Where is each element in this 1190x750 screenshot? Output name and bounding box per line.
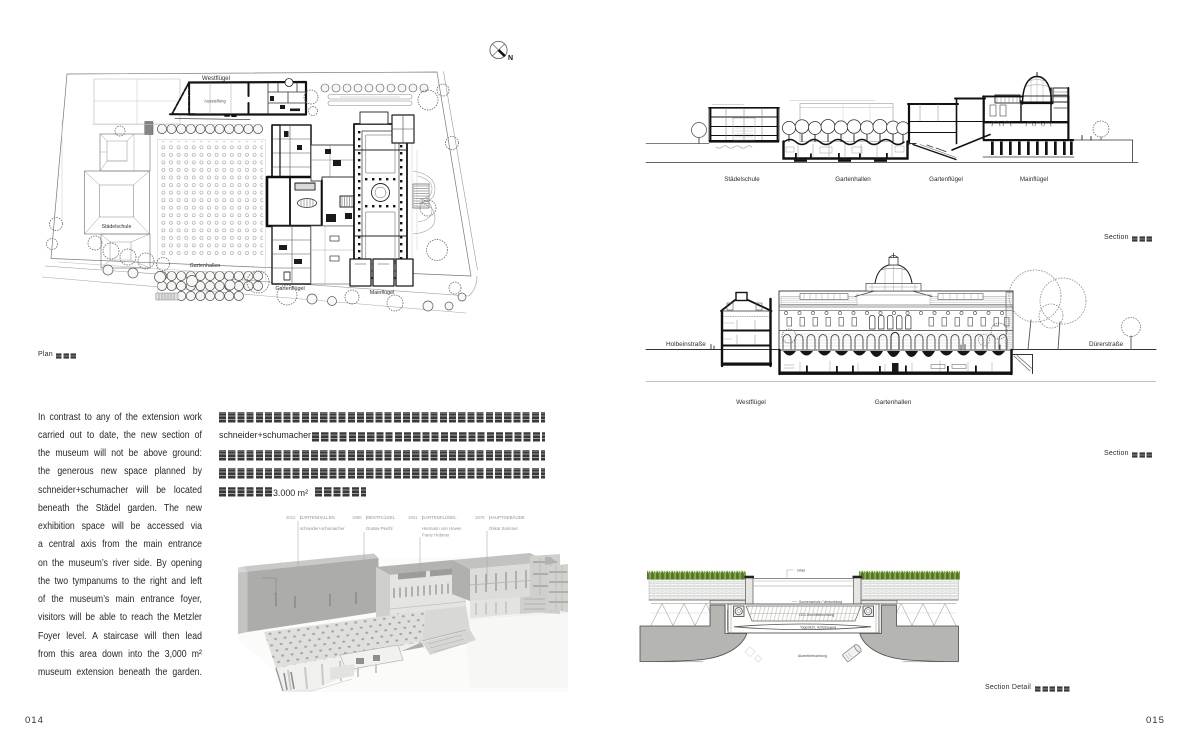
svg-text:Städelschule: Städelschule	[724, 176, 760, 183]
svg-text:Mainflügel: Mainflügel	[370, 290, 395, 296]
svg-text:Ausstellung: Ausstellung	[204, 99, 226, 104]
svg-text:Tageslicht, lichtstreuend: Tageslicht, lichtstreuend	[800, 625, 836, 629]
svg-text:HAUPTGEBÄUDE: HAUPTGEBÄUDE	[489, 515, 525, 520]
svg-text:Städelschule: Städelschule	[102, 224, 132, 230]
svg-text:schneider+schumacher: schneider+schumacher	[300, 526, 345, 531]
svg-text:2012: 2012	[286, 515, 296, 520]
svg-text:1921: 1921	[408, 515, 418, 520]
svg-text:Gartenflügel: Gartenflügel	[929, 176, 963, 183]
svg-text:Gartenhallen: Gartenhallen	[875, 399, 912, 406]
svg-text:1990: 1990	[352, 515, 362, 520]
svg-text:Holbeinstraße: Holbeinstraße	[666, 341, 706, 348]
svg-text:Westflügel: Westflügel	[736, 399, 766, 406]
svg-text:Gartenhallen: Gartenhallen	[835, 176, 871, 183]
svg-text:Mainflügel: Mainflügel	[1020, 176, 1048, 183]
svg-text:Franz Heberer: Franz Heberer	[422, 533, 450, 538]
svg-text:WESTFLÜGEL: WESTFLÜGEL	[366, 515, 396, 520]
svg-text:Sonnenschutz / Verdunklung: Sonnenschutz / Verdunklung	[799, 600, 842, 604]
svg-text:N: N	[508, 55, 513, 62]
svg-text:GARTENHALLEN: GARTENHALLEN	[300, 515, 335, 520]
svg-text:Gartenhallen: Gartenhallen	[190, 263, 221, 269]
svg-text:LED-Durchbeleuchtung: LED-Durchbeleuchtung	[799, 613, 834, 617]
svg-text:Akzentbeleuchtung: Akzentbeleuchtung	[798, 654, 827, 658]
svg-text:Glas: Glas	[797, 568, 805, 573]
svg-text:Hermann von Hoven: Hermann von Hoven	[422, 526, 462, 531]
svg-text:Oskar Sommer: Oskar Sommer	[489, 526, 518, 531]
svg-text:GARTENFLÜGEL: GARTENFLÜGEL	[422, 515, 457, 520]
svg-text:Westflügel: Westflügel	[202, 76, 230, 82]
svg-text:Gartenflügel: Gartenflügel	[275, 286, 304, 292]
svg-text:1878: 1878	[475, 515, 485, 520]
svg-text:Gustav Peichl: Gustav Peichl	[366, 526, 393, 531]
svg-text:Dürerstraße: Dürerstraße	[1089, 341, 1124, 348]
